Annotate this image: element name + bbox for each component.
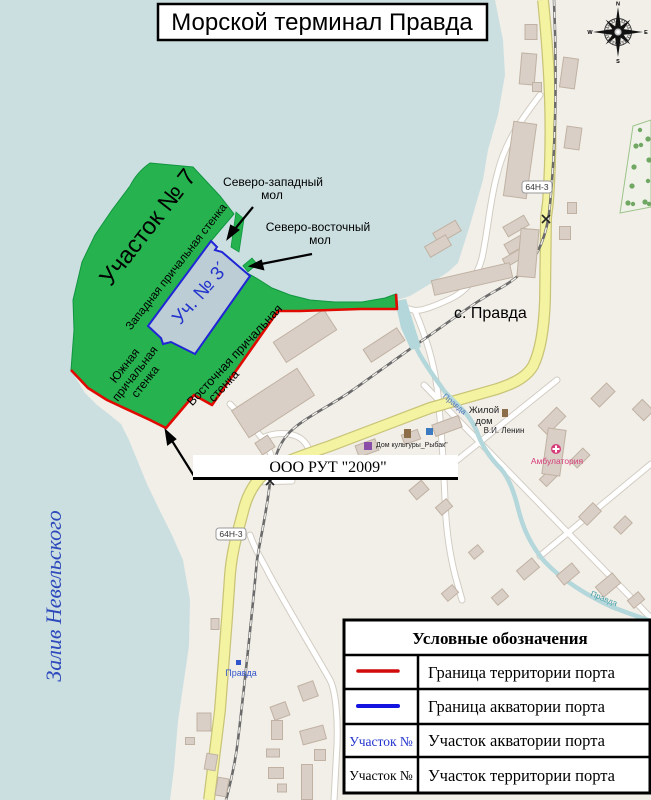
svg-text:W: W [587,30,593,36]
svg-text:Участок акватории порта: Участок акватории порта [428,731,606,750]
svg-text:Участок №: Участок № [349,768,413,783]
svg-text:Залив Невельского: Залив Невельского [41,510,66,681]
svg-text:Участок №: Участок № [349,734,413,749]
svg-text:с. Правда: с. Правда [454,305,527,322]
svg-text:ООО РУТ "2009": ООО РУТ "2009" [269,459,386,476]
svg-text:Морской терминал Правда: Морской терминал Правда [171,9,473,36]
svg-text:мол: мол [261,188,283,202]
svg-text:мол: мол [309,233,331,247]
svg-text:S: S [616,59,620,65]
svg-text:В.И. Ленин: В.И. Ленин [484,426,525,435]
svg-text:Северо-восточный: Северо-восточный [266,220,371,234]
svg-text:64Н-3: 64Н-3 [525,182,548,192]
svg-text:Правда: Правда [225,668,256,678]
svg-text:E: E [644,30,648,36]
svg-text:64Н-3: 64Н-3 [219,529,242,539]
svg-text:Участок территории порта: Участок территории порта [428,766,616,785]
svg-text:Северо-западный: Северо-западный [223,175,323,189]
svg-text:Дом культуры_Рыбак": Дом культуры_Рыбак" [376,441,448,449]
svg-text:Граница территории порта: Граница территории порта [428,663,616,682]
svg-text:N: N [616,2,620,8]
svg-text:Жилой: Жилой [469,405,499,416]
svg-text:Условные обозначения: Условные обозначения [412,629,588,648]
svg-text:Амбулатория: Амбулатория [531,456,584,466]
svg-text:Граница акватории порта: Граница акватории порта [428,697,606,716]
